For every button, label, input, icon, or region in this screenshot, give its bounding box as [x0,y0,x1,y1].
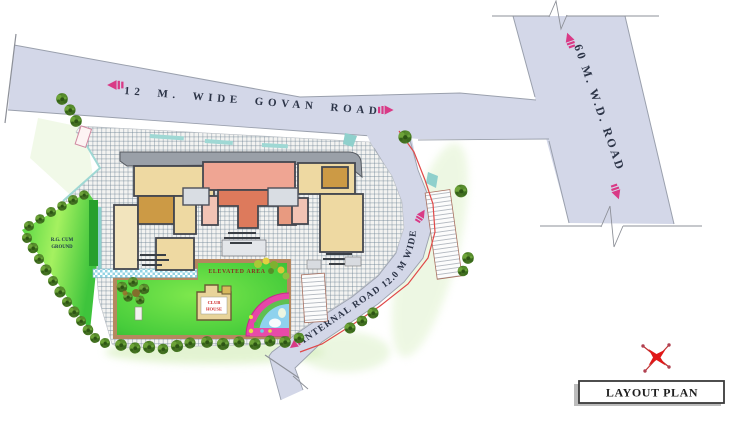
svg-text:CLUB: CLUB [208,300,221,305]
svg-text:HOUSE: HOUSE [206,307,222,312]
svg-text:GROUND: GROUND [51,245,73,250]
svg-text:LAYOUT PLAN: LAYOUT PLAN [606,386,698,400]
svg-text:R.G. CUM: R.G. CUM [51,238,74,243]
svg-text:ELEVATED AREA: ELEVATED AREA [208,269,265,275]
